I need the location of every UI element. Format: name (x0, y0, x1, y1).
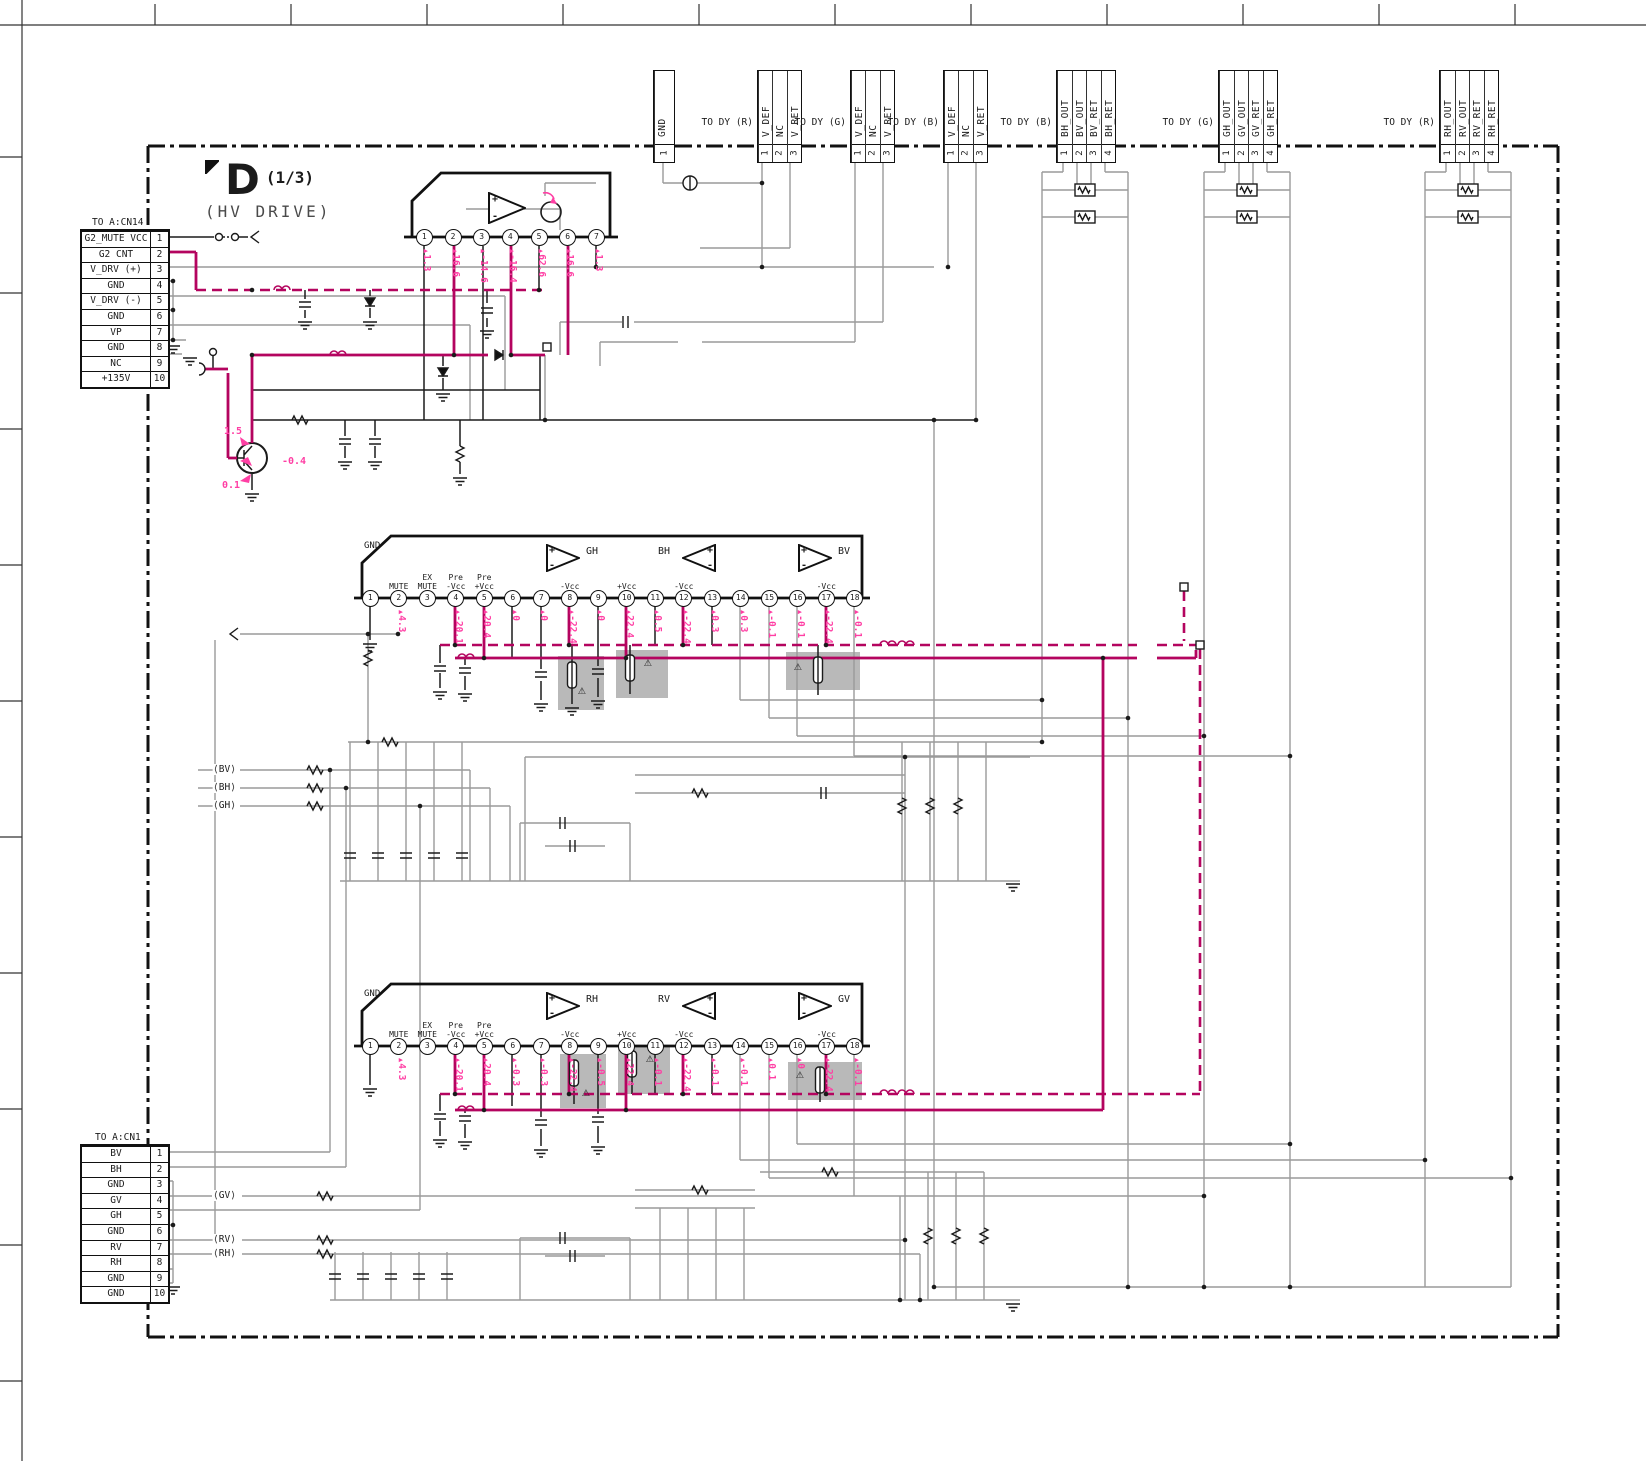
pin-voltage: -0.1 (852, 1058, 863, 1086)
ic-pin: 15 -0.1 (755, 590, 784, 607)
pin-voltage: 0.1 (766, 1058, 777, 1080)
pin-label: GH (82, 1209, 150, 1224)
pin-voltage: 22.4 (624, 1058, 635, 1086)
pin-name: BV_RET (1089, 100, 1100, 137)
pin-voltage: 0 (595, 610, 606, 621)
pin-number: 1 (655, 144, 674, 162)
connector-cn1: BV 1 BH 2 GND 3 GV 4 GH 5 GND 6 RV 7 (80, 1144, 170, 1304)
pin-voltage: 0.3 (738, 610, 749, 632)
schematic-page: { "title": {"letter": "D", "fraction": "… (0, 0, 1646, 1461)
amp-label: RV (658, 994, 670, 1005)
pin-voltage: 62.6 (536, 249, 547, 277)
pin-voltage: -22.4 (567, 610, 578, 644)
minus-sign: - (492, 212, 498, 221)
pin-label: GND (82, 1272, 150, 1287)
pin-number: 3 (788, 144, 801, 162)
pin-name: V_RET (976, 106, 987, 137)
top-connector-pin: V_DEF 1 (944, 71, 958, 162)
ic-pin: 13 -0.1 (698, 1038, 727, 1055)
pin-name: RV_RET (1472, 100, 1483, 137)
pin-number: 8 (150, 341, 168, 356)
ic-pin: 14 -0.1 (727, 1038, 756, 1055)
pin-voltage: -0.5 (595, 1058, 606, 1086)
amp-label: BV (838, 546, 850, 557)
pin-number: 4 (1485, 144, 1499, 162)
pin-voltage: -0.3 (538, 1058, 549, 1086)
pin-circle: 12 (675, 1038, 692, 1055)
plus-sign: + (549, 546, 555, 555)
pin-number: 2 (1456, 144, 1470, 162)
pin-voltage: -0.1 (795, 610, 806, 638)
connector-row: GV 4 (82, 1193, 168, 1209)
pin-name: RH_RET (1487, 100, 1498, 137)
pin-circle: 1 (362, 590, 379, 607)
ic-pin: EXMUTE 3 (413, 590, 442, 607)
pin-number: 2 (1235, 144, 1249, 162)
pin-label: GND (82, 310, 150, 325)
ic-pin: -Vcc 8 -22.4 (556, 590, 585, 607)
pin-circle: 10 (618, 1038, 635, 1055)
pin-label: RH (82, 1256, 150, 1271)
pin-voltage: -0.3 (510, 1058, 521, 1086)
pin-voltage: 0.5 (652, 610, 663, 632)
pin-voltage: -22.4 (567, 1058, 578, 1092)
signal-tag-rh: RH (213, 1248, 236, 1259)
connector-row: V_DRV (+) 3 (82, 262, 168, 278)
opamp: + - (488, 192, 526, 224)
pin-number: 3 (150, 1178, 168, 1193)
warning-icon: ⚠ (796, 1068, 804, 1081)
top-connector-pin: RH_RET 4 (1484, 71, 1499, 162)
pin-function-label: Pre-Vcc (446, 574, 465, 591)
top-connector-label: TO DY (G) (795, 117, 846, 128)
pin-circle: 9 (590, 1038, 607, 1055)
pin-number: 3 (1249, 144, 1263, 162)
top-connector-pin: NC 2 (772, 71, 786, 162)
pin-circle: 16 (789, 1038, 806, 1055)
pin-circle: 14 (732, 1038, 749, 1055)
pin-number: 7 (150, 326, 168, 341)
top-connector-pin: V_DEF 1 (758, 71, 772, 162)
pin-circle: 16 (789, 590, 806, 607)
opamp-rh: + - (546, 992, 580, 1020)
pin-voltage: -0.1 (766, 610, 777, 638)
top-connector-pin: BH_RET 4 (1101, 71, 1116, 162)
amp-label: GH (586, 546, 598, 557)
pin-name: BH_OUT (1060, 100, 1071, 137)
pin-label: VP (82, 326, 150, 341)
minus-sign: - (707, 561, 713, 570)
ic-pin: Pre+Vcc 5 20.4 (470, 590, 499, 607)
top-connector-pin: GH_OUT 1 (1219, 71, 1234, 162)
plus-sign: + (549, 994, 555, 1003)
pin-circle: 4 (447, 1038, 464, 1055)
top-connector-label: TO DY (B) (1001, 117, 1052, 128)
ic-mid-pins: 1 MUTE 2 4.3 EXMUTE 3 Pre-Vcc 4 -20.1 (356, 590, 869, 607)
connector-cn14: G2_MUTE VCC 1 G2 CNT 2 V_DRV (+) 3 GND 4… (80, 229, 170, 389)
ic-pin: 2 16.6 (439, 229, 468, 246)
ic-pin: 3 -14.6 (467, 229, 496, 246)
pin-number: 4 (150, 1194, 168, 1209)
top-connector-pin: V_DEF 1 (851, 71, 865, 162)
ic-pin: Pre-Vcc 4 -20.1 (442, 1038, 471, 1055)
connector-row: GND 4 (82, 278, 168, 294)
ic-pin: MUTE 2 4.3 (385, 1038, 414, 1055)
pin-voltage: 0 (538, 610, 549, 621)
pin-circle: 2 (445, 229, 462, 246)
top-connector-dy-r-out: TO DY (R) RH_OUT 1 RV_OUT 2 RV_RET 3 RH_… (1439, 70, 1499, 163)
top-connector-label: TO DY (B) (888, 117, 939, 128)
minus-sign: - (549, 561, 555, 570)
pin-voltage: -20.1 (453, 610, 464, 644)
opamp-gv: + - (798, 992, 832, 1020)
top-connector-label: TO DY (G) (1163, 117, 1214, 128)
top-connector-pin: GV_RET 3 (1248, 71, 1263, 162)
pin-circle: 17 (818, 1038, 835, 1055)
pin-circle: 17 (818, 590, 835, 607)
ic-pin: 15 0.1 (755, 1038, 784, 1055)
pin-circle: 4 (447, 590, 464, 607)
pin-circle: 15 (761, 590, 778, 607)
pin-label: GND (82, 1287, 150, 1302)
top-connector-dy-b: TO DY (B) V_DEF 1 NC 2 V_RET 3 (943, 70, 988, 163)
amp-label: GV (838, 994, 850, 1005)
pin-number: 3 (974, 144, 987, 162)
pin-circle: 5 (476, 590, 493, 607)
pin-label: G2_MUTE VCC (82, 232, 150, 247)
pin-number: 1 (150, 232, 168, 247)
title-block: D (1/3) (HV DRIVE) (205, 160, 331, 221)
top-connector-pin: RH_OUT 1 (1440, 71, 1455, 162)
pin-number: 4 (150, 279, 168, 294)
connector-row: +135V 10 (82, 371, 168, 387)
pin-circle: 6 (504, 1038, 521, 1055)
connector-row: GND 6 (82, 309, 168, 325)
pin-name: NC (868, 125, 879, 137)
plus-sign: + (707, 546, 713, 555)
pin-function-label: Pre+Vcc (475, 574, 494, 591)
pin-function-label: Pre+Vcc (475, 1022, 494, 1039)
plus-sign: + (801, 994, 807, 1003)
pin-circle: 8 (561, 1038, 578, 1055)
top-connector-pin: BV_OUT 2 (1072, 71, 1087, 162)
pin-number: 3 (150, 263, 168, 278)
pin-name: RH_OUT (1443, 100, 1454, 137)
pin-number: 1 (852, 144, 865, 162)
pin-number: 2 (773, 144, 786, 162)
ic-pin: 9 0 (584, 590, 613, 607)
pin-circle: 3 (473, 229, 490, 246)
top-connector-pin: BH_OUT 1 (1057, 71, 1072, 162)
pin-number: 2 (959, 144, 972, 162)
pin-circle: 1 (416, 229, 433, 246)
minus-sign: - (549, 1009, 555, 1018)
pin-circle: 3 (419, 590, 436, 607)
ic-hv-drive-pins: 1 1.3 2 16.6 3 -14.6 4 -16.4 5 62.6 6 16… (410, 229, 611, 246)
pin-voltage: -22.4 (681, 610, 692, 644)
title-mark-icon (205, 160, 219, 174)
pin-number: 1 (759, 144, 772, 162)
pin-name: GV_OUT (1237, 100, 1248, 137)
opamp-bh: + - (682, 544, 716, 572)
pin-voltage: 20.4 (481, 610, 492, 638)
pin-circle: 18 (846, 590, 863, 607)
connector-row: BH 2 (82, 1162, 168, 1178)
opamp-bv: + - (798, 544, 832, 572)
pin-label: V_DRV (+) (82, 263, 150, 278)
pin-number: 10 (150, 1287, 168, 1302)
signal-tag-rv: RV (213, 1234, 236, 1245)
pin-circle: 11 (647, 590, 664, 607)
pin-circle: 6 (559, 229, 576, 246)
ic-pin: 14 0.3 (727, 590, 756, 607)
top-connector-pin: GV_OUT 2 (1234, 71, 1249, 162)
ic-pin: 1 (356, 590, 385, 607)
warning-icon: ⚠ (582, 1086, 590, 1099)
pin-voltage: 4.3 (396, 1058, 407, 1080)
ic-pin: 7 1.3 (582, 229, 611, 246)
pin-label: GND (82, 1225, 150, 1240)
cn1-caption: TO A:CN1 (95, 1132, 141, 1143)
top-connector-pin: V_RET 3 (973, 71, 987, 162)
connector-row: RH 8 (82, 1255, 168, 1271)
ic-pin: Pre+Vcc 5 20.4 (470, 1038, 499, 1055)
plus-sign: + (801, 546, 807, 555)
pin-number: 1 (945, 144, 958, 162)
pin-label: V_DRV (-) (82, 294, 150, 309)
pin-circle: 7 (533, 1038, 550, 1055)
pin-label: BV (82, 1147, 150, 1162)
top-connector-label: TO DY (R) (702, 117, 753, 128)
top-connector-pin: BV_RET 3 (1086, 71, 1101, 162)
pin-circle: 3 (419, 1038, 436, 1055)
ic-pin: -Vcc 12 -22.4 (670, 1038, 699, 1055)
ic-pin: MUTE 2 4.3 (385, 590, 414, 607)
pin-name: RV_OUT (1458, 100, 1469, 137)
pin-circle: 15 (761, 1038, 778, 1055)
pin-number: 3 (1087, 144, 1101, 162)
pin-voltage: -0.1 (852, 610, 863, 638)
ic-pin: 9 -0.5 (584, 1038, 613, 1055)
pin-number: 10 (150, 372, 168, 387)
pin-circle: 7 (588, 229, 605, 246)
top-connector-pin: RV_RET 3 (1469, 71, 1484, 162)
pin-circle: 2 (390, 1038, 407, 1055)
pin-circle: 13 (704, 590, 721, 607)
top-connector-label: TO DY (R) (1384, 117, 1435, 128)
amp-label: RH (586, 994, 598, 1005)
minus-sign: - (801, 1009, 807, 1018)
signal-tag-gh: GH (213, 800, 236, 811)
pin-circle: 1 (362, 1038, 379, 1055)
pin-voltage: -0.1 (709, 1058, 720, 1086)
minus-sign: - (801, 561, 807, 570)
pin-voltage: 22.4 (624, 610, 635, 638)
cn14-caption: TO A:CN14 (92, 217, 143, 228)
pin-circle: 2 (390, 590, 407, 607)
pin-label: NC (82, 357, 150, 372)
pin-voltage: 1.3 (421, 249, 432, 271)
connector-row: GND 3 (82, 1177, 168, 1193)
opamp-rv: + - (682, 992, 716, 1020)
pin-number: 4 (1102, 144, 1116, 162)
pin-voltage: -22.4 (681, 1058, 692, 1092)
ic-pin: +Vcc 10 22.4 (613, 1038, 642, 1055)
pin-circle: 5 (531, 229, 548, 246)
pin-label: +135V (82, 372, 150, 387)
pin-function-label: EXMUTE (418, 574, 437, 591)
connector-row: G2_MUTE VCC 1 (82, 231, 168, 247)
ic-pin: 7 0 (527, 590, 556, 607)
pin-circle: 14 (732, 590, 749, 607)
pin-name: NC (775, 125, 786, 137)
pin-number: 6 (150, 310, 168, 325)
title-subtitle: (HV DRIVE) (205, 202, 331, 221)
ic-pin: 13 0.3 (698, 590, 727, 607)
ic-pin: 18 -0.1 (841, 1038, 870, 1055)
pin-voltage: 1.3 (593, 249, 604, 271)
connector-row: GH 5 (82, 1208, 168, 1224)
connector-row: GND 10 (82, 1286, 168, 1302)
minus-sign: - (707, 1009, 713, 1018)
warning-icon: ⚠ (644, 656, 652, 669)
title-fraction: (1/3) (266, 168, 314, 187)
ic-pin: 1 1.3 (410, 229, 439, 246)
plus-sign: + (707, 994, 713, 1003)
pin-voltage: -0.1 (738, 1058, 749, 1086)
ic-pin: -Vcc 8 -22.4 (556, 1038, 585, 1055)
pin-name: NC (961, 125, 972, 137)
connector-row: GND 9 (82, 1271, 168, 1287)
pin-number: 3 (881, 144, 894, 162)
pin-label: GND (82, 341, 150, 356)
page-title: D (225, 160, 260, 200)
pin-label: GND (82, 279, 150, 294)
pin-number: 7 (150, 1241, 168, 1256)
ic-gnd-label: GND (364, 541, 380, 551)
pin-circle: 9 (590, 590, 607, 607)
warning-icon: ⚠ (646, 1052, 654, 1065)
pin-number: 5 (150, 294, 168, 309)
pin-name: V_DEF (947, 106, 958, 137)
pin-voltage: -16.4 (507, 249, 518, 283)
connector-row: G2 CNT 2 (82, 247, 168, 263)
plus-sign: + (492, 195, 498, 204)
ic-pin: EXMUTE 3 (413, 1038, 442, 1055)
pin-number: 6 (150, 1225, 168, 1240)
pin-label: GND (82, 1178, 150, 1193)
opamp-gh: + - (546, 544, 580, 572)
warning-icon: ⚠ (794, 660, 802, 673)
top-connector-dy-g-out: TO DY (G) GH_OUT 1 GV_OUT 2 GV_RET 3 GH_… (1218, 70, 1278, 163)
ic-pin: 6 0 (499, 590, 528, 607)
pin-number: 1 (150, 1147, 168, 1162)
pin-voltage: -22.4 (823, 1058, 834, 1092)
connector-row: NC 9 (82, 356, 168, 372)
ic-pin: 5 62.6 (525, 229, 554, 246)
pin-function-label: Pre-Vcc (446, 1022, 465, 1039)
pin-number: 2 (150, 248, 168, 263)
pin-voltage: 16.6 (450, 249, 461, 277)
pin-circle: 6 (504, 590, 521, 607)
ic-pin: 7 -0.3 (527, 1038, 556, 1055)
pin-name: V_DEF (761, 106, 772, 137)
connector-row: V_DRV (-) 5 (82, 293, 168, 309)
pin-number: 2 (1073, 144, 1087, 162)
top-connector-pin: GH_RET 4 (1263, 71, 1278, 162)
pin-label: RV (82, 1241, 150, 1256)
transistor-collector-voltage: 1.5 (224, 426, 242, 437)
pin-circle: 7 (533, 590, 550, 607)
connector-row: GND 6 (82, 1224, 168, 1240)
transistor-base-voltage: -0.4 (282, 456, 306, 467)
top-connector-pin: NC 2 (865, 71, 879, 162)
pin-name: V_DEF (854, 106, 865, 137)
pin-name: GH_RET (1266, 100, 1277, 137)
connector-row: RV 7 (82, 1240, 168, 1256)
pin-number: 1 (1058, 144, 1072, 162)
pin-label: GV (82, 1194, 150, 1209)
pin-circle: 8 (561, 590, 578, 607)
pin-number: 2 (866, 144, 879, 162)
ic-gnd-label: GND (364, 989, 380, 999)
signal-tag-bh: BH (213, 782, 236, 793)
pin-label: BH (82, 1163, 150, 1178)
warning-icon: ⚠ (578, 684, 586, 697)
pin-voltage: 16.6 (564, 249, 575, 277)
ic-pin: 4 -16.4 (496, 229, 525, 246)
pin-circle: 10 (618, 590, 635, 607)
pin-number: 1 (1441, 144, 1455, 162)
pin-voltage: 20.4 (481, 1058, 492, 1086)
pin-name: GH_OUT (1222, 100, 1233, 137)
ic-pin: -Vcc 17 -22.4 (812, 1038, 841, 1055)
pin-number: 9 (150, 1272, 168, 1287)
ic-pin: 11 0.5 (641, 590, 670, 607)
pin-voltage: 0.3 (709, 610, 720, 632)
ic-pin: +Vcc 10 22.4 (613, 590, 642, 607)
pin-circle: 18 (846, 1038, 863, 1055)
pin-circle: 4 (502, 229, 519, 246)
pin-number: 5 (150, 1209, 168, 1224)
pin-name: BV_OUT (1075, 100, 1086, 137)
signal-tag-gv: GV (213, 1190, 236, 1201)
top-connector-pin: NC 2 (958, 71, 972, 162)
top-connector-dy-b-out: TO DY (B) BH_OUT 1 BV_OUT 2 BV_RET 3 BH_… (1056, 70, 1116, 163)
pin-number: 8 (150, 1256, 168, 1271)
ic-pin: 6 16.6 (553, 229, 582, 246)
ic-pin: 16 -0.1 (784, 590, 813, 607)
ic-pin: Pre-Vcc 4 -20.1 (442, 590, 471, 607)
ic-bot-pins: 1 MUTE 2 4.3 EXMUTE 3 Pre-Vcc 4 -20.1 (356, 1038, 869, 1055)
pin-voltage: -14.6 (478, 249, 489, 283)
ic-pin: -Vcc 17 -22.4 (812, 590, 841, 607)
top-connector-pin: GND 1 (654, 71, 674, 162)
pin-voltage: -20.1 (453, 1058, 464, 1092)
pin-voltage: 4.3 (396, 610, 407, 632)
pin-label: G2 CNT (82, 248, 150, 263)
top-connector-pin: RV_OUT 2 (1455, 71, 1470, 162)
pin-circle: 5 (476, 1038, 493, 1055)
top-connector-gnd: GND 1 (653, 70, 675, 163)
ic-pin: 18 -0.1 (841, 590, 870, 607)
pin-number: 2 (150, 1163, 168, 1178)
ic-pin: 1 (356, 1038, 385, 1055)
pin-number: 3 (1470, 144, 1484, 162)
pin-function-label: EXMUTE (418, 1022, 437, 1039)
pin-circle: 13 (704, 1038, 721, 1055)
pin-number: 1 (1220, 144, 1234, 162)
